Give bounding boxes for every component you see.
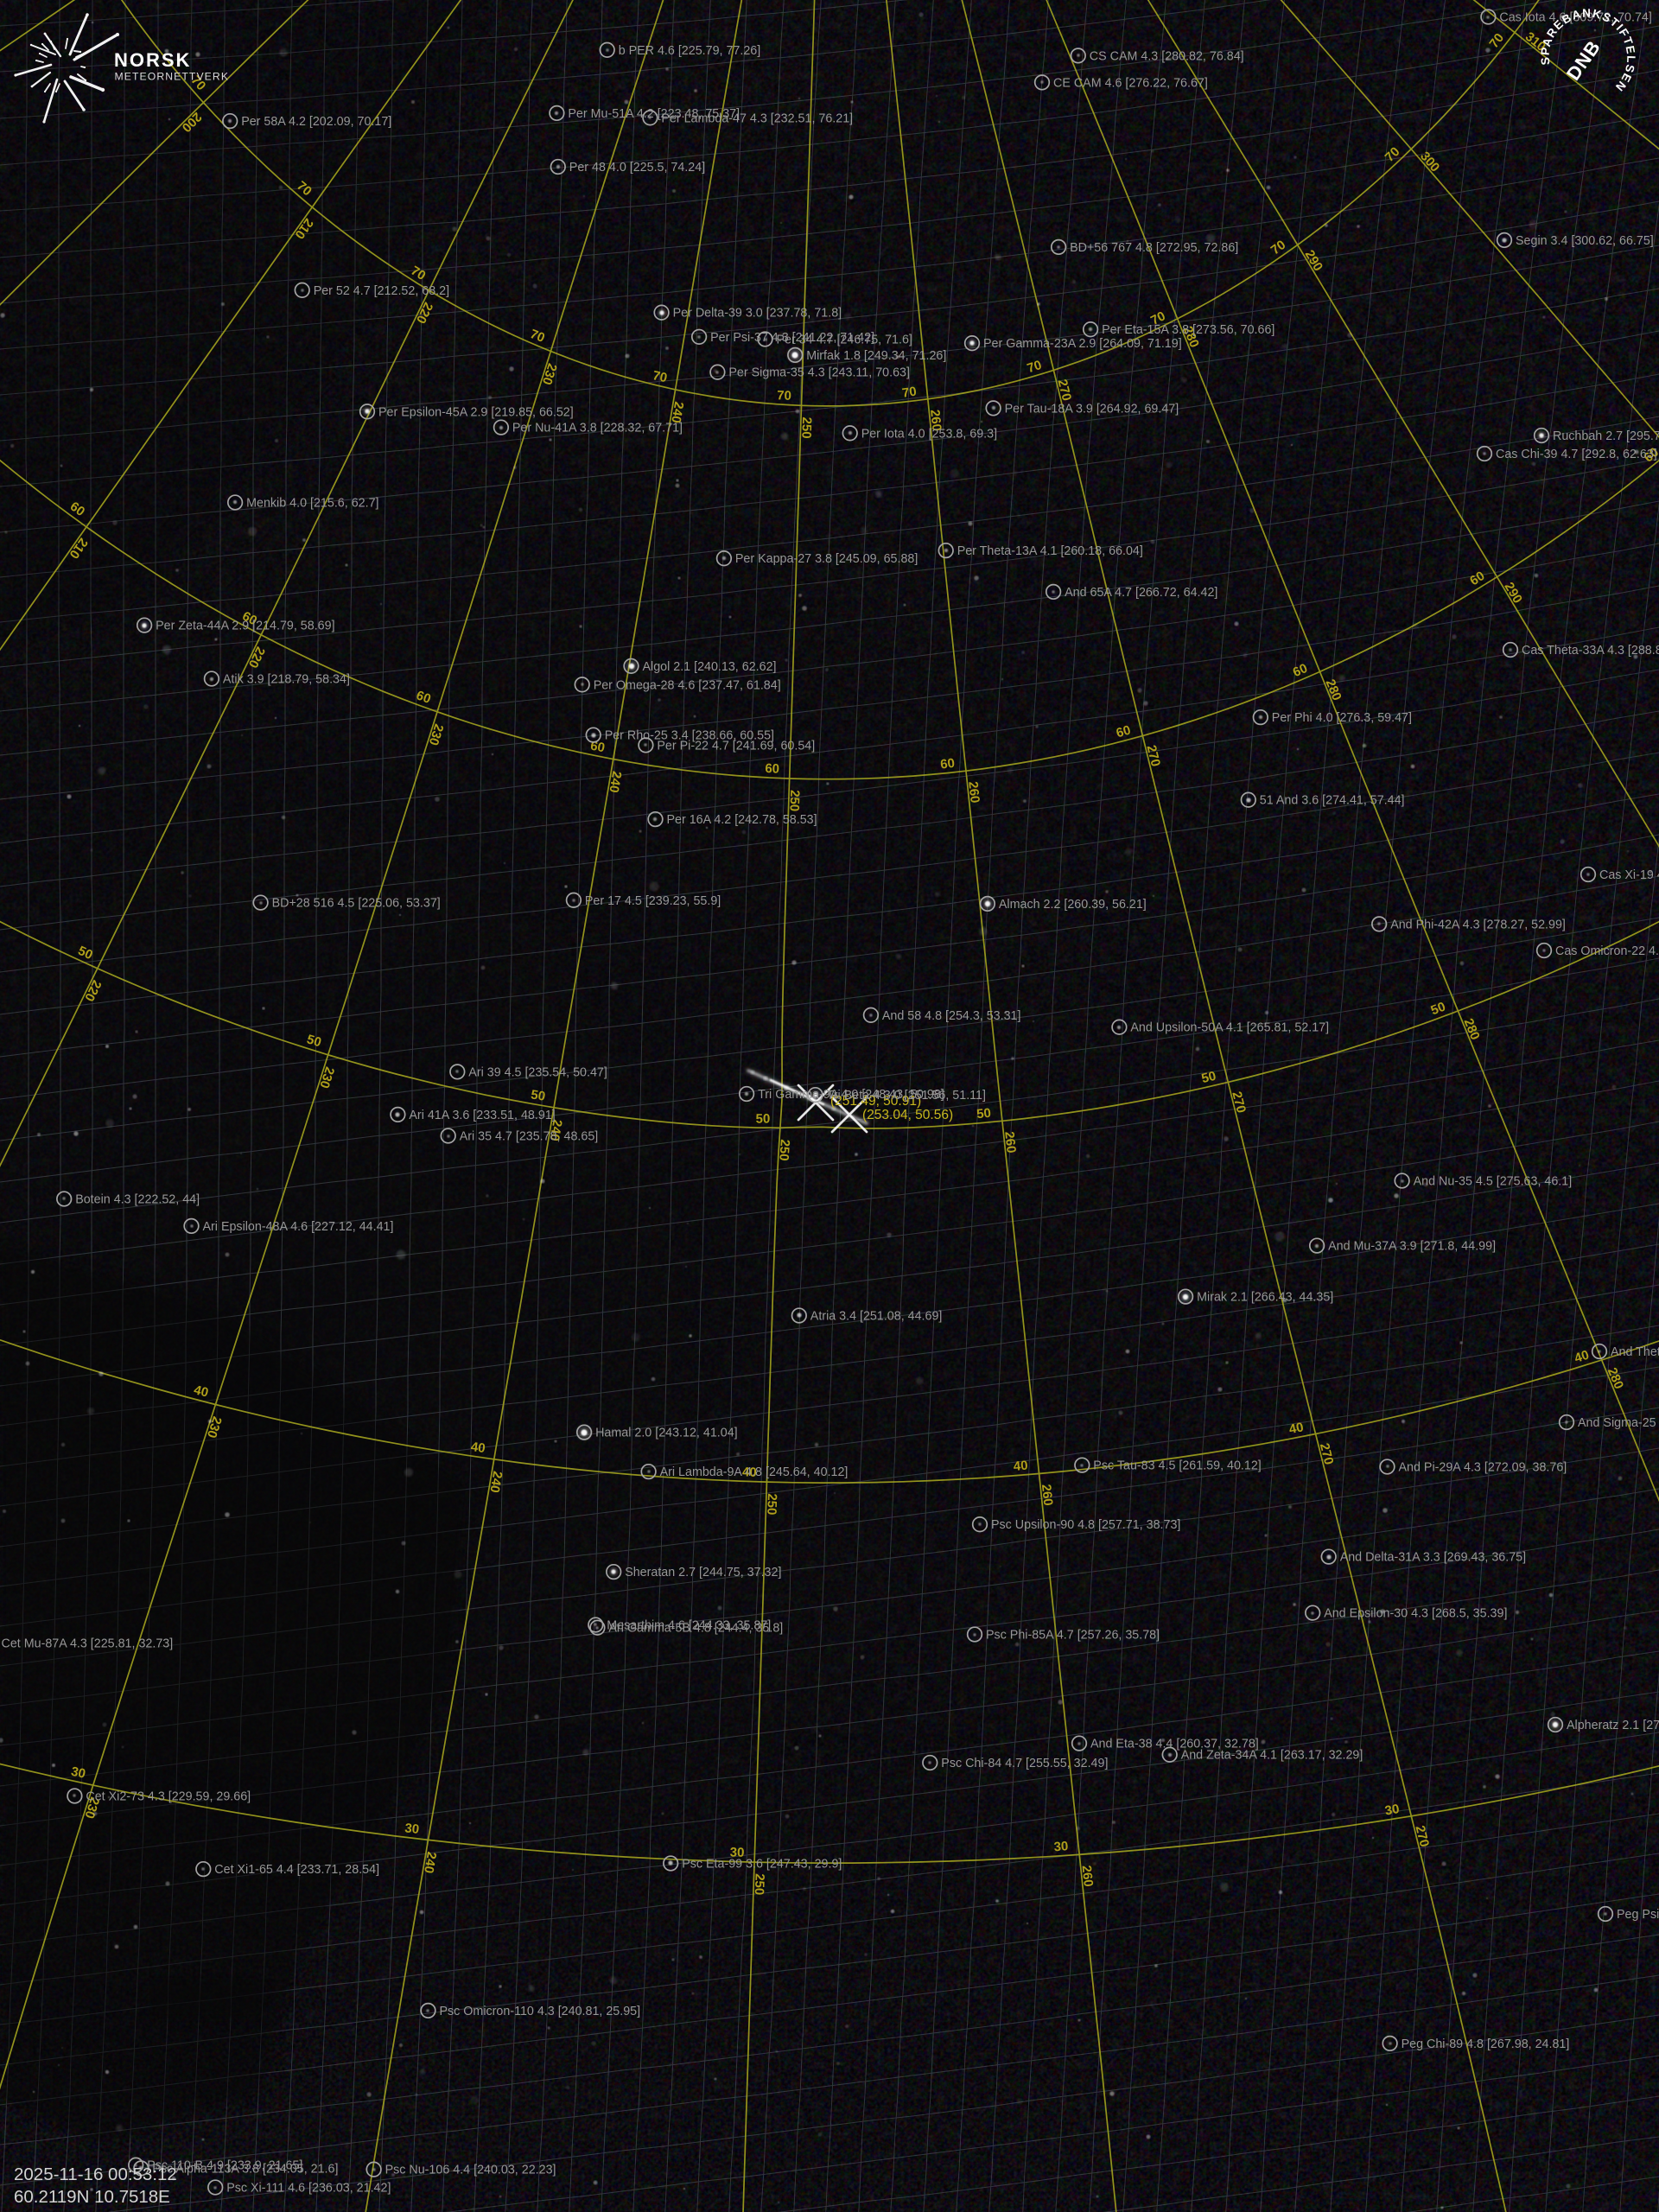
svg-text:Ruchbah 2.7 [295.72, 62.16]: Ruchbah 2.7 [295.72, 62.16] — [1553, 429, 1659, 443]
svg-text:Almach 2.2 [260.39, 56.21]: Almach 2.2 [260.39, 56.21] — [999, 898, 1147, 912]
svg-text:Segin 3.4 [300.62, 66.75]: Segin 3.4 [300.62, 66.75] — [1516, 234, 1654, 248]
svg-text:NORSK: NORSK — [114, 49, 191, 71]
svg-text:Ari Lambda-9A 4.8 [245.64, 40.: Ari Lambda-9A 4.8 [245.64, 40.12] — [660, 1465, 849, 1479]
svg-text:Per 48 4.0 [225.5, 74.24]: Per 48 4.0 [225.5, 74.24] — [569, 161, 705, 175]
svg-text:And Phi-42A 4.3 [278.27, 52.99: And Phi-42A 4.3 [278.27, 52.99] — [1390, 918, 1566, 931]
svg-text:And Upsilon-50A 4.1 [265.81, 5: And Upsilon-50A 4.1 [265.81, 52.17] — [1130, 1021, 1329, 1035]
svg-text:250: 250 — [752, 1873, 767, 1896]
svg-text:Cas Theta-33A 4.3 [288.82, 57.: Cas Theta-33A 4.3 [288.82, 57.95] — [1522, 644, 1659, 658]
svg-text:And 65A 4.7 [266.72, 64.42]: And 65A 4.7 [266.72, 64.42] — [1065, 586, 1217, 600]
svg-text:Per 52 4.7 [212.52, 68.2]: Per 52 4.7 [212.52, 68.2] — [314, 284, 449, 298]
svg-text:Ari 39 4.5 [235.54, 50.47]: Ari 39 4.5 [235.54, 50.47] — [468, 1065, 607, 1079]
svg-text:Per Epsilon-45A 2.9 [219.85, 6: Per Epsilon-45A 2.9 [219.85, 66.52] — [378, 405, 574, 419]
svg-text:Atria 3.4 [251.08, 44.69]: Atria 3.4 [251.08, 44.69] — [810, 1310, 943, 1324]
svg-text:Per Tau-18A 3.9 [264.92, 69.47: Per Tau-18A 3.9 [264.92, 69.47] — [1005, 402, 1179, 416]
svg-text:Per Phi 4.0 [276.3, 59.47]: Per Phi 4.0 [276.3, 59.47] — [1272, 711, 1412, 725]
svg-text:Peg Chi-89 4.8 [267.98, 24.81]: Peg Chi-89 4.8 [267.98, 24.81] — [1402, 2037, 1570, 2051]
svg-text:51 And 3.6 [274.41, 57.44]: 51 And 3.6 [274.41, 57.44] — [1260, 794, 1405, 808]
svg-text:Ari Epsilon-48A 4.6 [227.12, 4: Ari Epsilon-48A 4.6 [227.12, 44.41] — [203, 1220, 394, 1234]
svg-text:60.2119N 10.7518E: 60.2119N 10.7518E — [14, 2187, 170, 2207]
svg-text:And Sigma-25 4.5 [278.51, 38.5: And Sigma-25 4.5 [278.51, 38.59] — [1578, 1416, 1659, 1430]
svg-text:Sheratan 2.7 [244.75, 37.32]: Sheratan 2.7 [244.75, 37.32] — [625, 1566, 781, 1580]
svg-text:Peg Psi-84 4.7 [274.74, 26.56]: Peg Psi-84 4.7 [274.74, 26.56] — [1617, 1908, 1659, 1922]
svg-text:250: 250 — [764, 1493, 779, 1516]
svg-text:Per Gamma-23A 2.9 [264.09, 71.: Per Gamma-23A 2.9 [264.09, 71.19] — [983, 337, 1182, 351]
svg-text:Per Iota 4.0 [253.8, 69.3]: Per Iota 4.0 [253.8, 69.3] — [861, 427, 997, 441]
svg-text:And Theta-24 4.6 [281.35, 39.2: And Theta-24 4.6 [281.35, 39.27] — [1611, 1345, 1659, 1359]
svg-text:Per Lambda-47 4.3 [232.51, 76.: Per Lambda-47 4.3 [232.51, 76.21] — [661, 111, 853, 125]
svg-text:And Nu-35 4.5 [275.63, 46.1]: And Nu-35 4.5 [275.63, 46.1] — [1414, 1175, 1573, 1189]
svg-text:Psc Omicron-110 4.3 [240.81, 2: Psc Omicron-110 4.3 [240.81, 25.95] — [440, 2005, 641, 2018]
svg-text:Per Sigma-35 4.3 [243.11, 70.6: Per Sigma-35 4.3 [243.11, 70.63] — [728, 366, 910, 380]
svg-text:Per Zeta-44A 2.9 [214.79, 58.6: Per Zeta-44A 2.9 [214.79, 58.69] — [156, 620, 334, 633]
svg-text:Hamal 2.0 [243.12, 41.04]: Hamal 2.0 [243.12, 41.04] — [595, 1427, 738, 1440]
svg-text:70: 70 — [901, 385, 918, 401]
svg-text:METEORNETTVERK: METEORNETTVERK — [115, 71, 230, 83]
svg-text:Cet Xi1-65 4.4 [233.71, 28.54]: Cet Xi1-65 4.4 [233.71, 28.54] — [214, 1863, 379, 1877]
svg-text:Per 16A 4.2 [242.78, 58.53]: Per 16A 4.2 [242.78, 58.53] — [667, 813, 817, 827]
svg-text:CS CAM 4.3 [280.82, 76.84]: CS CAM 4.3 [280.82, 76.84] — [1090, 49, 1244, 63]
svg-text:50: 50 — [530, 1087, 546, 1103]
svg-text:250: 250 — [798, 416, 814, 439]
svg-text:Cas Xi-19 4.8 [287.15, 51.62]: Cas Xi-19 4.8 [287.15, 51.62] — [1599, 868, 1659, 882]
svg-text:50: 50 — [976, 1106, 991, 1122]
svg-text:CE CAM 4.6 [276.22, 76.67]: CE CAM 4.6 [276.22, 76.67] — [1053, 76, 1208, 90]
svg-text:And Delta-31A 3.3 [269.43, 36.: And Delta-31A 3.3 [269.43, 36.75] — [1340, 1551, 1526, 1565]
svg-text:2025-11-16 00:53:12: 2025-11-16 00:53:12 — [14, 2164, 177, 2184]
svg-text:Cas Omicron-22 4.5 [284.23, 50: Cas Omicron-22 4.5 [284.23, 50.39] — [1555, 944, 1659, 958]
svg-text:Psc Nu-106 4.4 [240.03, 22.23]: Psc Nu-106 4.4 [240.03, 22.23] — [385, 2164, 556, 2177]
svg-text:Psc Eta-99 3.6 [247.43, 29.9]: Psc Eta-99 3.6 [247.43, 29.9] — [682, 1858, 842, 1872]
svg-text:Psc Xi-111 4.6 [236.03, 21.42]: Psc Xi-111 4.6 [236.03, 21.42] — [226, 2182, 391, 2196]
svg-text:And Pi-29A 4.3 [272.09, 38.76]: And Pi-29A 4.3 [272.09, 38.76] — [1399, 1461, 1567, 1475]
svg-text:Psc Chi-84 4.7 [255.55, 32.49]: Psc Chi-84 4.7 [255.55, 32.49] — [941, 1757, 1108, 1770]
svg-text:70: 70 — [652, 368, 669, 385]
svg-text:40: 40 — [1287, 1420, 1305, 1437]
svg-text:And 58 4.8 [254.3, 53.31]: And 58 4.8 [254.3, 53.31] — [882, 1009, 1021, 1023]
svg-text:40: 40 — [1013, 1459, 1028, 1474]
svg-text:Ari 41A 3.6 [233.51, 48.91]: Ari 41A 3.6 [233.51, 48.91] — [409, 1109, 555, 1122]
svg-text:60: 60 — [939, 756, 956, 772]
svg-text:250: 250 — [786, 790, 802, 812]
svg-text:b PER 4.6 [225.79, 77.26]: b PER 4.6 [225.79, 77.26] — [619, 44, 761, 58]
svg-text:Per Kappa-27 3.8 [245.09, 65.8: Per Kappa-27 3.8 [245.09, 65.88] — [735, 552, 918, 566]
svg-text:Ari Gamma-5B 4.8 [244.4, 35.8]: Ari Gamma-5B 4.8 [244.4, 35.8] — [608, 1622, 783, 1636]
svg-text:Per 58A 4.2 [202.09, 70.17]: Per 58A 4.2 [202.09, 70.17] — [241, 115, 391, 129]
svg-text:Per Delta-39 3.0 [237.78, 71.8: Per Delta-39 3.0 [237.78, 71.8] — [673, 307, 842, 321]
svg-text:Per 34 4.7 [246.75, 71.6]: Per 34 4.7 [246.75, 71.6] — [777, 334, 912, 347]
svg-text:260: 260 — [965, 781, 982, 804]
svg-text:70: 70 — [777, 388, 791, 404]
svg-text:Psc Phi-85A 4.7 [257.26, 35.78: Psc Phi-85A 4.7 [257.26, 35.78] — [986, 1629, 1160, 1643]
svg-text:260: 260 — [1079, 1865, 1096, 1888]
svg-text:30: 30 — [1053, 1839, 1069, 1854]
svg-text:Mirak 2.1 [266.43, 44.35]: Mirak 2.1 [266.43, 44.35] — [1197, 1291, 1333, 1305]
svg-text:50: 50 — [755, 1111, 770, 1126]
svg-text:30: 30 — [70, 1764, 87, 1782]
svg-text:260: 260 — [1039, 1484, 1056, 1507]
svg-text:And Zeta-34A 4.1 [263.17, 32.2: And Zeta-34A 4.1 [263.17, 32.29] — [1181, 1749, 1363, 1763]
svg-text:Per Eta-15A 3.8 [273.56, 70.66: Per Eta-15A 3.8 [273.56, 70.66] — [1102, 323, 1274, 337]
svg-text:Mirfak 1.8 [249.34, 71.26]: Mirfak 1.8 [249.34, 71.26] — [806, 349, 946, 363]
svg-text:And Mu-37A 3.9 [271.8, 44.99]: And Mu-37A 3.9 [271.8, 44.99] — [1328, 1240, 1496, 1254]
svg-text:Cas Chi-39 4.7 [292.8, 62.63]: Cas Chi-39 4.7 [292.8, 62.63] — [1496, 448, 1657, 461]
svg-text:Per Nu-41A 3.8 [228.32, 67.71]: Per Nu-41A 3.8 [228.32, 67.71] — [512, 422, 683, 435]
svg-text:60: 60 — [765, 761, 779, 777]
svg-text:Cet Xi2-73 4.3 [229.59, 29.66]: Cet Xi2-73 4.3 [229.59, 29.66] — [86, 1790, 251, 1804]
svg-text:Per Pi-22 4.7 [241.69, 60.54]: Per Pi-22 4.7 [241.69, 60.54] — [657, 739, 815, 753]
svg-text:Tri Beta-4 3.0 [251.56, 51.11]: Tri Beta-4 3.0 [251.56, 51.11] — [827, 1089, 986, 1103]
svg-text:BD+28 516 4.5 [225.06, 53.37]: BD+28 516 4.5 [225.06, 53.37] — [272, 897, 441, 911]
svg-text:Algol 2.1 [240.13, 62.62]: Algol 2.1 [240.13, 62.62] — [643, 660, 777, 674]
svg-text:(253.04, 50.56): (253.04, 50.56) — [862, 1108, 953, 1122]
svg-text:Atik 3.9 [218.79, 58.34]: Atik 3.9 [218.79, 58.34] — [223, 673, 350, 687]
svg-text:Menkib 4.0 [215.6, 62.7]: Menkib 4.0 [215.6, 62.7] — [246, 497, 378, 511]
svg-text:30: 30 — [1384, 1802, 1401, 1818]
svg-text:Psc Tau-83 4.5 [261.59, 40.12]: Psc Tau-83 4.5 [261.59, 40.12] — [1093, 1459, 1261, 1473]
svg-text:Botein 4.3 [222.52, 44]: Botein 4.3 [222.52, 44] — [75, 1193, 200, 1207]
svg-text:40: 40 — [470, 1440, 486, 1456]
svg-text:BD+56 767 4.8 [272.95, 72.86]: BD+56 767 4.8 [272.95, 72.86] — [1070, 241, 1238, 255]
svg-text:Per Omega-28 4.6 [237.47, 61.8: Per Omega-28 4.6 [237.47, 61.84] — [594, 678, 781, 692]
svg-text:Alpheratz 2.1 [274.89, 31.37]: Alpheratz 2.1 [274.89, 31.37] — [1567, 1719, 1659, 1732]
svg-text:And Epsilon-30 4.3 [268.5, 35.: And Epsilon-30 4.3 [268.5, 35.39] — [1324, 1607, 1507, 1621]
svg-text:Psc Upsilon-90 4.8 [257.71, 38: Psc Upsilon-90 4.8 [257.71, 38.73] — [991, 1518, 1180, 1532]
svg-text:30: 30 — [404, 1821, 421, 1837]
svg-text:260: 260 — [1001, 1131, 1019, 1154]
svg-text:Per Theta-13A 4.1 [260.18, 66.: Per Theta-13A 4.1 [260.18, 66.04] — [957, 544, 1143, 558]
svg-text:Cet Mu-87A 4.3 [225.81, 32.73]: Cet Mu-87A 4.3 [225.81, 32.73] — [2, 1637, 174, 1651]
svg-text:Ari 35 4.7 [235.78, 48.65]: Ari 35 4.7 [235.78, 48.65] — [460, 1130, 599, 1144]
svg-text:250: 250 — [776, 1139, 792, 1161]
svg-text:Per 17 4.5 [239.23, 55.9]: Per 17 4.5 [239.23, 55.9] — [585, 894, 721, 908]
